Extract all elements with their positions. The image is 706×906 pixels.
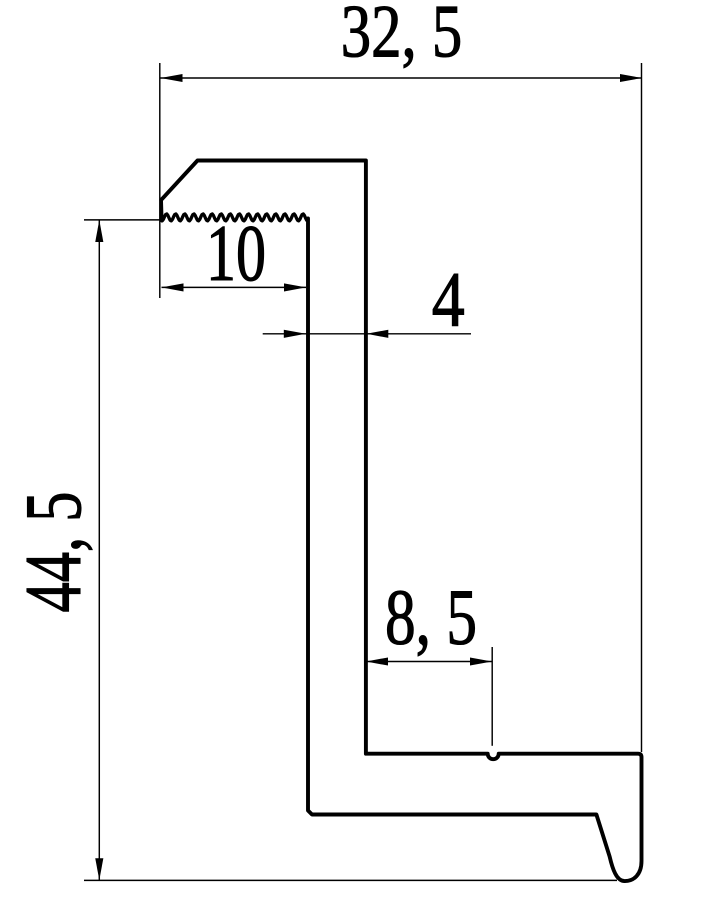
svg-text:8, 5: 8, 5 bbox=[385, 575, 477, 662]
svg-text:32, 5: 32, 5 bbox=[341, 0, 463, 74]
svg-text:10: 10 bbox=[206, 210, 266, 298]
svg-text:44, 5: 44, 5 bbox=[10, 492, 98, 613]
svg-text:4: 4 bbox=[432, 256, 465, 343]
